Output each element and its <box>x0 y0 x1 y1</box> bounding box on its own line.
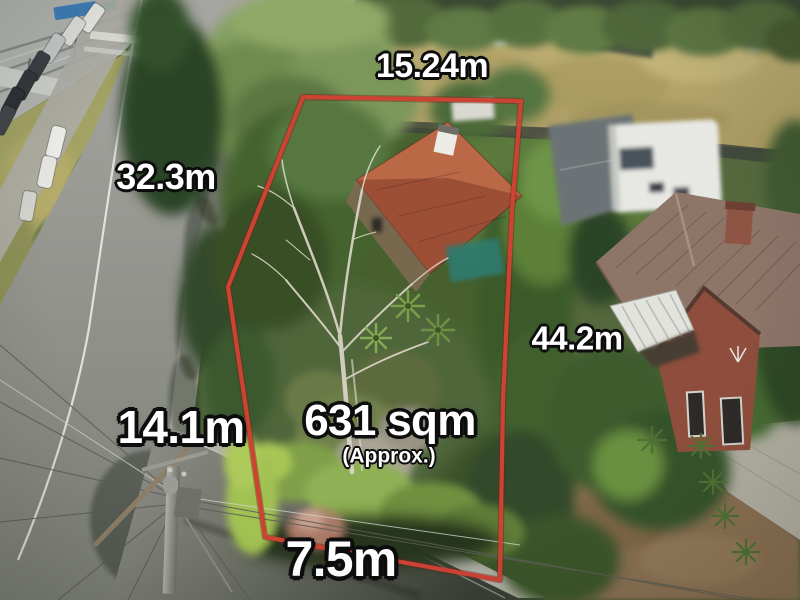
area-label: 631 sqm <box>304 399 476 443</box>
dimension-label-right: 44.2m <box>531 322 622 355</box>
dimension-label-bottom: 7.5m <box>286 534 397 584</box>
boundary-outline-shadow <box>228 97 521 580</box>
aerial-photo: 15.24m 32.3m 44.2m 14.1m 7.5m 631 sqm (A… <box>0 0 800 600</box>
boundary-overlay <box>0 0 800 600</box>
area-qualifier-label: (Approx.) <box>342 446 435 467</box>
dimension-label-lower-left: 14.1m <box>118 404 245 450</box>
dimension-label-top: 15.24m <box>376 49 488 83</box>
dimension-label-left: 32.3m <box>116 159 215 195</box>
